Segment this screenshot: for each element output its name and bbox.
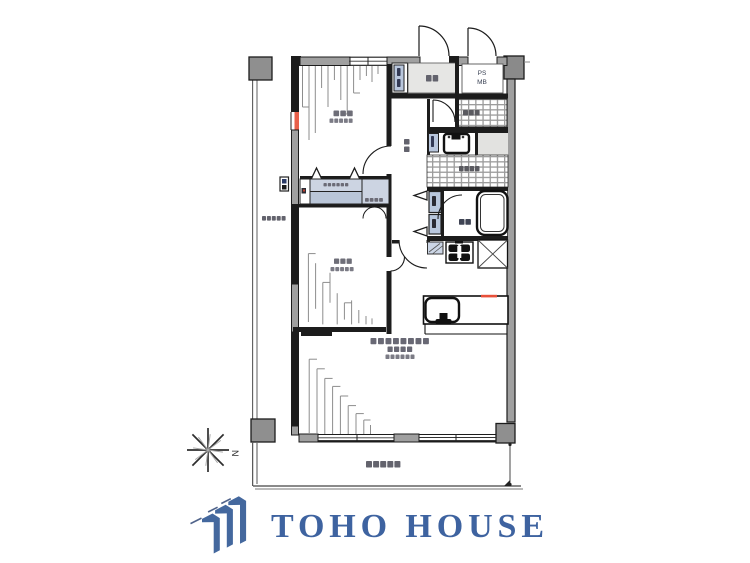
svg-text:TOHO HOUSE: TOHO HOUSE [271,508,549,545]
svg-text:PS: PS [478,70,487,77]
svg-text:MB: MB [477,79,487,86]
svg-text:N: N [230,450,240,457]
